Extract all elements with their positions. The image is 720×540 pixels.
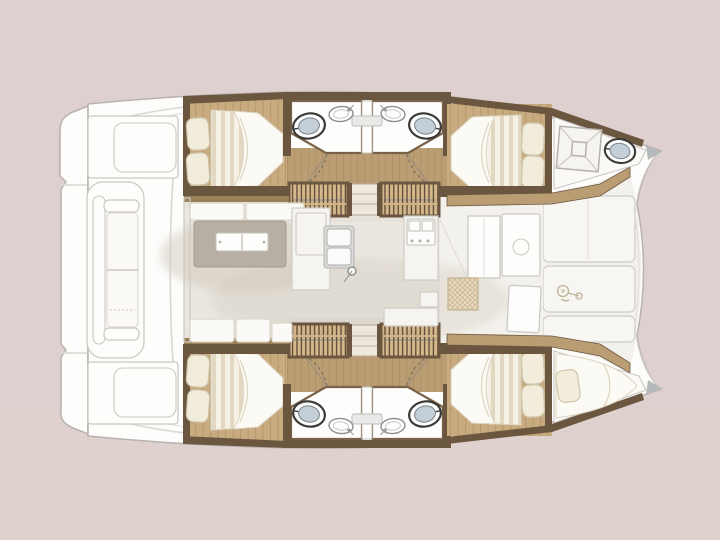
galley-aft-counter: [384, 308, 438, 326]
salon-table: [194, 221, 286, 267]
step-trim: [377, 183, 381, 216]
windlass-axis: [561, 289, 565, 293]
aft-bench: [87, 182, 144, 358]
pillow: [186, 117, 210, 150]
foredeck-panel: [543, 196, 635, 262]
salon-seat: [272, 323, 292, 342]
step-trim: [348, 183, 352, 216]
entry-steps: [349, 184, 380, 215]
salon-side-wall-sill: [184, 196, 289, 202]
bathroom-outboard-trim: [283, 92, 451, 100]
deck-hatch: [556, 126, 602, 172]
pillow: [186, 152, 210, 185]
aft-cabin-bed: [186, 110, 283, 188]
salon-side-wall: [184, 186, 289, 196]
forward-cabin: [447, 96, 552, 194]
bench-armrest: [104, 328, 139, 340]
tray-handle: [219, 241, 222, 244]
bench-armrest: [104, 200, 139, 212]
transom-locker: [88, 116, 178, 178]
bathroom-console: [352, 116, 382, 126]
sink-basin: [327, 248, 351, 265]
stove-knob: [419, 240, 422, 243]
hatch-center: [571, 141, 586, 156]
catamaran-floor-plan: [0, 0, 720, 540]
stove-knob: [411, 240, 414, 243]
aft-cabin: [183, 92, 287, 196]
foredeck-panel: [543, 266, 635, 312]
forepeak-bulkhead: [545, 111, 552, 189]
pillow: [521, 122, 545, 155]
tray-handle: [263, 241, 266, 244]
forward-door-2: [507, 285, 541, 333]
pillow: [521, 155, 545, 188]
forward-cabin-bed: [451, 115, 545, 191]
pillow: [555, 369, 581, 404]
salon-seat: [190, 203, 244, 220]
bathroom-side-trim: [283, 98, 291, 156]
salon-seat: [236, 319, 270, 342]
stern-swim-platform: [60, 106, 88, 434]
galley-aft-counter-small: [420, 292, 438, 307]
sink-basin: [327, 229, 351, 246]
bathroom-partition-wall: [362, 101, 372, 153]
entry-mat: [448, 278, 478, 310]
stove-knob: [427, 240, 430, 243]
salon-seat: [190, 319, 234, 342]
forward-door: [502, 214, 540, 276]
